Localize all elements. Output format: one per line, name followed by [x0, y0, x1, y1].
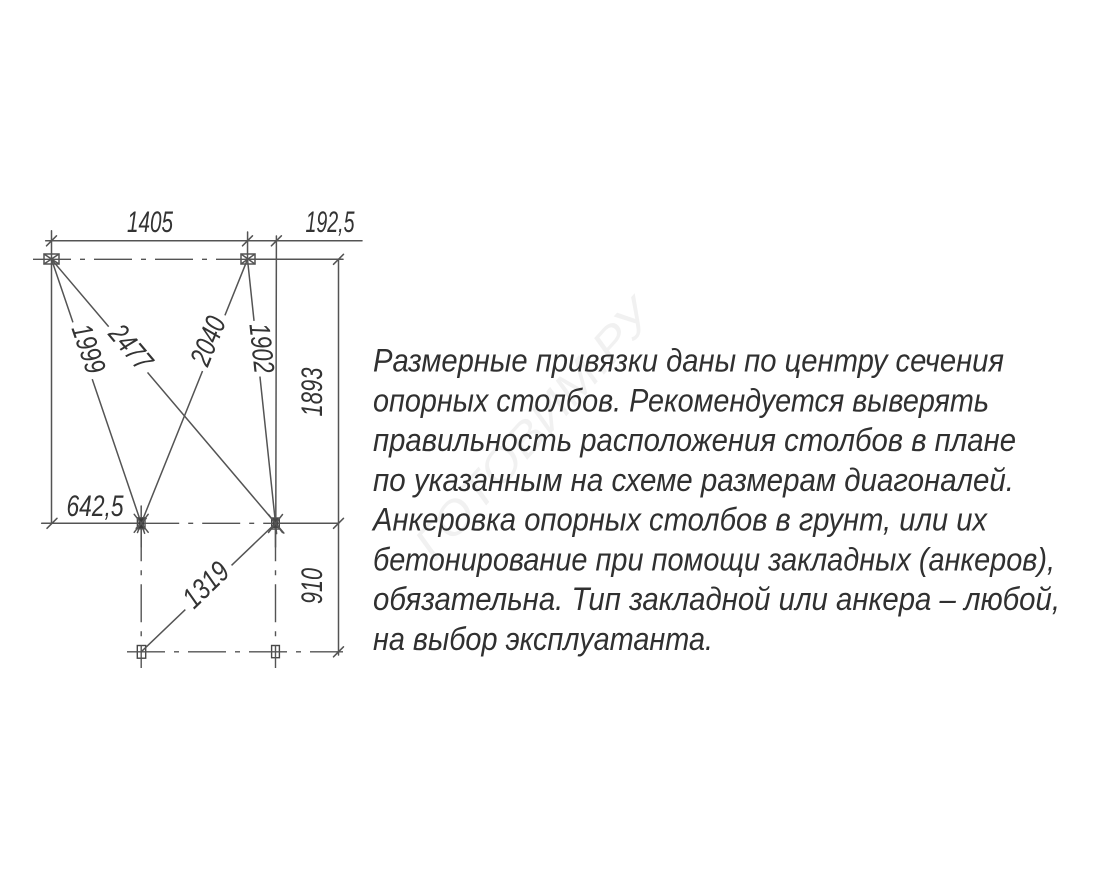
- svg-text:на выбор эксплуатанта.: на выбор эксплуатанта.: [373, 621, 713, 657]
- svg-text:1405: 1405: [127, 206, 173, 239]
- svg-text:по указанным на схеме размерам: по указанным на схеме размерам диагонале…: [373, 462, 1014, 498]
- svg-text:Размерные привязки даны по цен: Размерные привязки даны по центру сечени…: [373, 343, 1004, 379]
- svg-text:опорных столбов. Рекомендуется: опорных столбов. Рекомендуется выверять: [373, 382, 989, 418]
- svg-text:642,5: 642,5: [67, 490, 124, 523]
- svg-text:910: 910: [296, 568, 329, 604]
- svg-text:1902: 1902: [242, 322, 279, 375]
- svg-text:правильность расположения стол: правильность расположения столбов в план…: [373, 422, 1016, 458]
- svg-text:1893: 1893: [296, 367, 329, 416]
- svg-text:192,5: 192,5: [306, 206, 355, 239]
- svg-text:обязательна. Тип закладной или: обязательна. Тип закладной или анкера – …: [373, 581, 1060, 617]
- svg-text:бетонирование при помощи закла: бетонирование при помощи закладных (анке…: [373, 541, 1055, 577]
- svg-text:Анкеровка опорных столбов в гр: Анкеровка опорных столбов в грунт, или и…: [371, 502, 988, 538]
